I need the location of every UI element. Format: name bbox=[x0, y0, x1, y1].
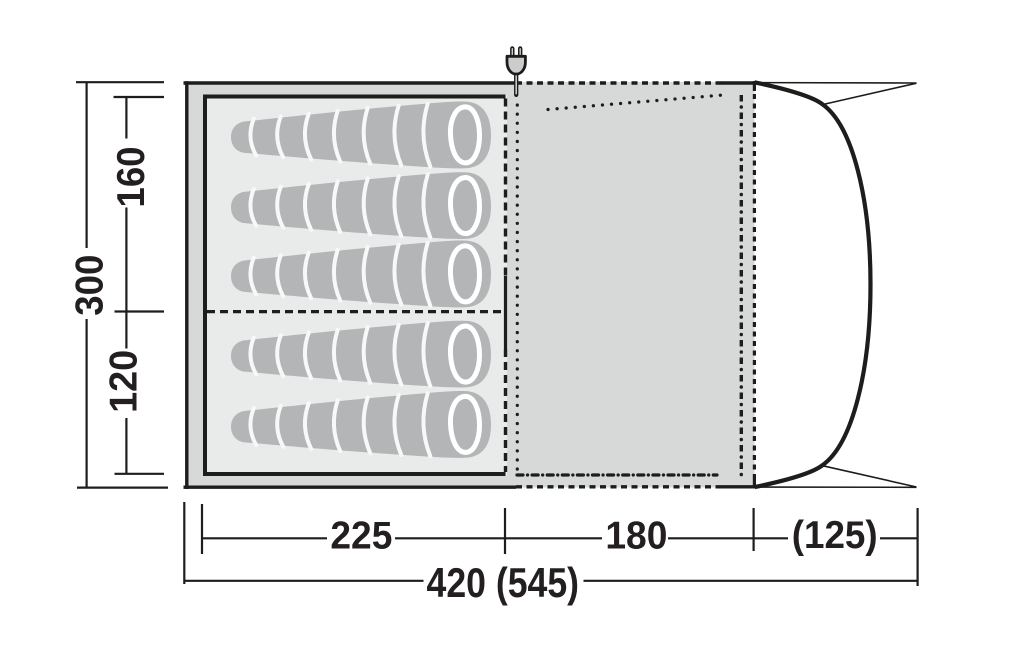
svg-text:(125): (125) bbox=[792, 514, 878, 557]
svg-text:225: 225 bbox=[330, 515, 392, 558]
svg-text:420 (545): 420 (545) bbox=[427, 559, 580, 606]
svg-text:160: 160 bbox=[110, 147, 153, 208]
svg-text:180: 180 bbox=[605, 514, 667, 557]
svg-text:120: 120 bbox=[103, 350, 146, 413]
svg-text:300: 300 bbox=[69, 255, 112, 316]
